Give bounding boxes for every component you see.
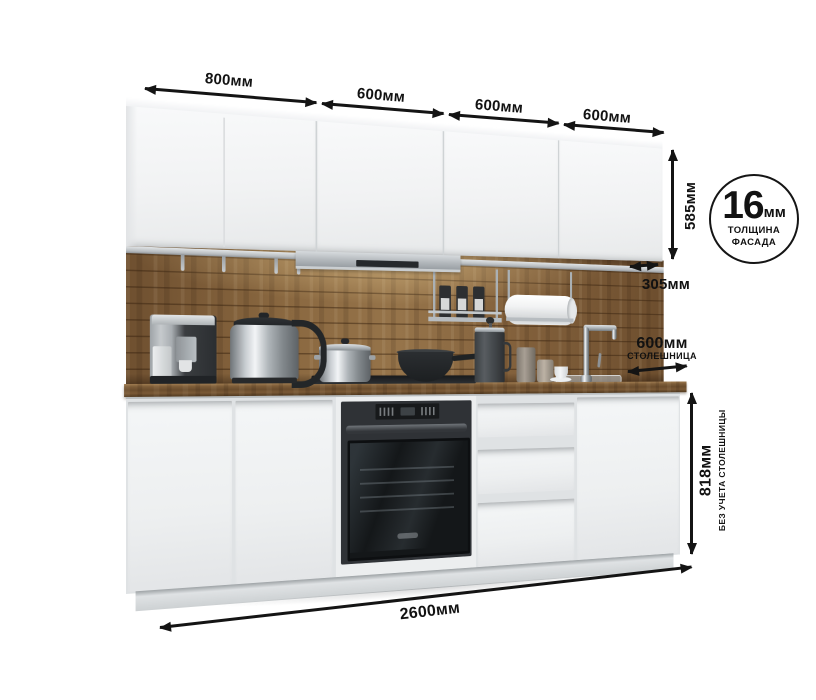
dim-label-2600: 2600мм	[384, 599, 475, 626]
dim-label-305: 305мм	[633, 277, 699, 293]
badge-unit: мм	[764, 207, 786, 219]
dim-sublabel-stoleshnitsa: СТОЛЕШНИЦА	[622, 352, 702, 361]
dim-arrow-585	[671, 150, 674, 259]
dim-label-600-1: 600мм	[345, 85, 416, 106]
dim-arrow-600-top	[628, 364, 687, 373]
dim-arrow-800	[145, 87, 317, 104]
badge-caption-line1: ТОЛЩИНА	[728, 225, 780, 237]
badge-caption: ТОЛЩИНА ФАСАДА	[728, 225, 780, 249]
dim-label-585: 585мм	[683, 166, 699, 246]
badge-value: 16	[722, 190, 763, 221]
dim-sublabel-818: БЕЗ УЧЕТА СТОЛЕШНИЦЫ	[718, 390, 727, 550]
dim-arrow-305	[630, 263, 658, 268]
badge-value-row: 16мм	[722, 190, 786, 221]
annotations: 800мм 600мм 600мм 600мм 585мм 305мм 16мм…	[0, 0, 816, 700]
badge-caption-line2: ФАСАДА	[728, 237, 780, 249]
dim-label-818: 818мм	[699, 430, 716, 510]
dim-label-800: 800мм	[193, 70, 264, 91]
kitchen-dimensions-diagram: 800мм 600мм 600мм 600мм 585мм 305мм 16мм…	[0, 0, 816, 700]
dim-arrow-818	[690, 393, 693, 554]
facade-thickness-badge: 16мм ТОЛЩИНА ФАСАДА	[709, 174, 799, 264]
